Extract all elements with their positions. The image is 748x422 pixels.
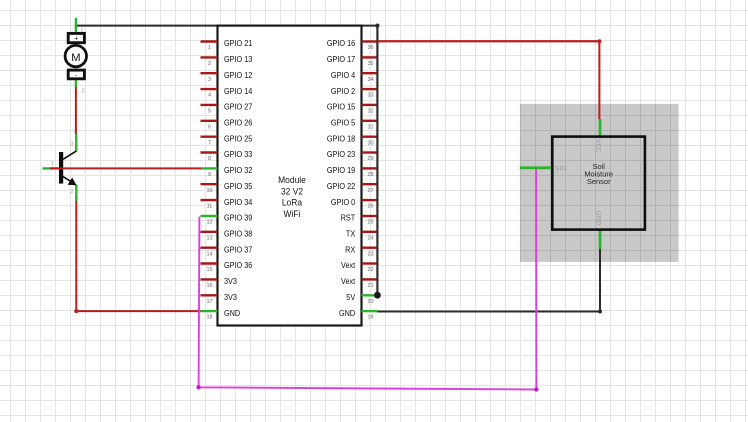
svg-text:GPIO 32: GPIO 32	[224, 166, 252, 176]
svg-text:18: 18	[206, 315, 212, 321]
svg-text:GPIO 12: GPIO 12	[224, 70, 252, 80]
svg-text:5V: 5V	[346, 293, 356, 303]
svg-text:GPIO 21: GPIO 21	[224, 39, 252, 49]
svg-text:GPIO 26: GPIO 26	[224, 118, 252, 128]
svg-text:GPIO 16: GPIO 16	[327, 39, 355, 49]
svg-text:19: 19	[367, 315, 373, 321]
svg-text:2: 2	[71, 189, 74, 195]
svg-text:7: 7	[208, 140, 211, 146]
svg-text:15: 15	[206, 267, 212, 273]
svg-text:25: 25	[367, 220, 373, 226]
svg-text:GPIO 39: GPIO 39	[224, 213, 252, 223]
svg-text:Vext: Vext	[341, 261, 356, 271]
svg-text:14: 14	[206, 251, 212, 257]
svg-text:GPIO 19: GPIO 19	[327, 166, 355, 176]
svg-text:GPIO 33: GPIO 33	[224, 150, 252, 160]
svg-text:GND: GND	[594, 211, 601, 226]
svg-text:RST: RST	[341, 213, 356, 223]
svg-text:31: 31	[367, 124, 373, 130]
svg-text:GPIO 23: GPIO 23	[327, 150, 355, 160]
svg-text:32: 32	[367, 109, 373, 115]
svg-text:8: 8	[208, 156, 211, 162]
svg-text:GPIO 18: GPIO 18	[327, 134, 355, 144]
svg-text:21: 21	[367, 283, 373, 289]
svg-text:36: 36	[367, 45, 373, 51]
svg-text:GPIO 13: GPIO 13	[224, 55, 252, 65]
svg-text:WiFi: WiFi	[284, 208, 301, 219]
svg-text:+: +	[74, 34, 79, 43]
svg-text:1: 1	[51, 161, 54, 167]
svg-text:GPIO 17: GPIO 17	[327, 55, 355, 65]
svg-text:1: 1	[81, 28, 84, 34]
svg-text:GPIO 2: GPIO 2	[331, 86, 355, 96]
svg-text:GPIO 36: GPIO 36	[224, 261, 252, 271]
svg-text:30: 30	[367, 140, 373, 146]
svg-text:TX: TX	[346, 229, 356, 239]
svg-text:34: 34	[367, 77, 373, 83]
svg-text:1: 1	[208, 45, 211, 51]
svg-text:GPIO 22: GPIO 22	[327, 181, 355, 191]
svg-text:M: M	[71, 52, 80, 64]
svg-text:GND: GND	[224, 308, 241, 318]
svg-text:2: 2	[208, 61, 211, 67]
svg-text:27: 27	[367, 188, 373, 194]
svg-text:GPIO 38: GPIO 38	[224, 229, 252, 239]
svg-text:29: 29	[367, 156, 373, 162]
svg-text:6: 6	[208, 124, 211, 130]
svg-text:9: 9	[208, 172, 211, 178]
svg-text:11: 11	[207, 204, 213, 210]
svg-text:28: 28	[367, 172, 373, 178]
svg-text:4: 4	[208, 93, 211, 99]
svg-text:32 V2: 32 V2	[281, 186, 303, 197]
svg-text:2: 2	[82, 89, 85, 95]
svg-text:Module: Module	[278, 175, 306, 186]
svg-text:5: 5	[208, 109, 211, 115]
svg-text:13: 13	[206, 235, 212, 241]
svg-text:3V3: 3V3	[224, 293, 237, 303]
svg-text:Vext: Vext	[341, 277, 356, 287]
svg-text:16: 16	[206, 283, 212, 289]
svg-text:35: 35	[367, 61, 373, 67]
svg-text:3: 3	[208, 77, 211, 83]
svg-text:GPIO 4: GPIO 4	[331, 70, 356, 80]
svg-text:GND: GND	[339, 308, 356, 318]
svg-text:SIG: SIG	[555, 165, 566, 172]
svg-text:GPIO 5: GPIO 5	[331, 118, 356, 128]
svg-text:3: 3	[71, 142, 74, 148]
svg-text:RX: RX	[345, 245, 356, 255]
svg-text:33: 33	[367, 93, 373, 99]
svg-text:12: 12	[206, 220, 212, 226]
svg-text:3V3: 3V3	[224, 277, 237, 287]
svg-text:GPIO 27: GPIO 27	[224, 102, 252, 112]
svg-text:GPIO 34: GPIO 34	[224, 197, 253, 207]
svg-text:GPIO 35: GPIO 35	[224, 181, 253, 191]
svg-text:VCC: VCC	[594, 139, 601, 153]
svg-text:23: 23	[367, 251, 373, 257]
svg-text:GPIO 14: GPIO 14	[224, 86, 253, 96]
svg-text:GPIO 0: GPIO 0	[331, 197, 356, 207]
svg-text:Sensor: Sensor	[587, 177, 611, 186]
svg-text:10: 10	[206, 188, 212, 194]
svg-text:17: 17	[206, 299, 212, 305]
svg-text:26: 26	[367, 204, 373, 210]
svg-text:GPIO 25: GPIO 25	[224, 134, 253, 144]
svg-text:LoRa: LoRa	[282, 197, 302, 208]
svg-text:24: 24	[367, 235, 373, 241]
svg-text:GPIO 15: GPIO 15	[327, 102, 356, 112]
svg-text:22: 22	[367, 267, 373, 273]
svg-text:GPIO 37: GPIO 37	[224, 245, 252, 255]
svg-text:20: 20	[367, 299, 373, 305]
